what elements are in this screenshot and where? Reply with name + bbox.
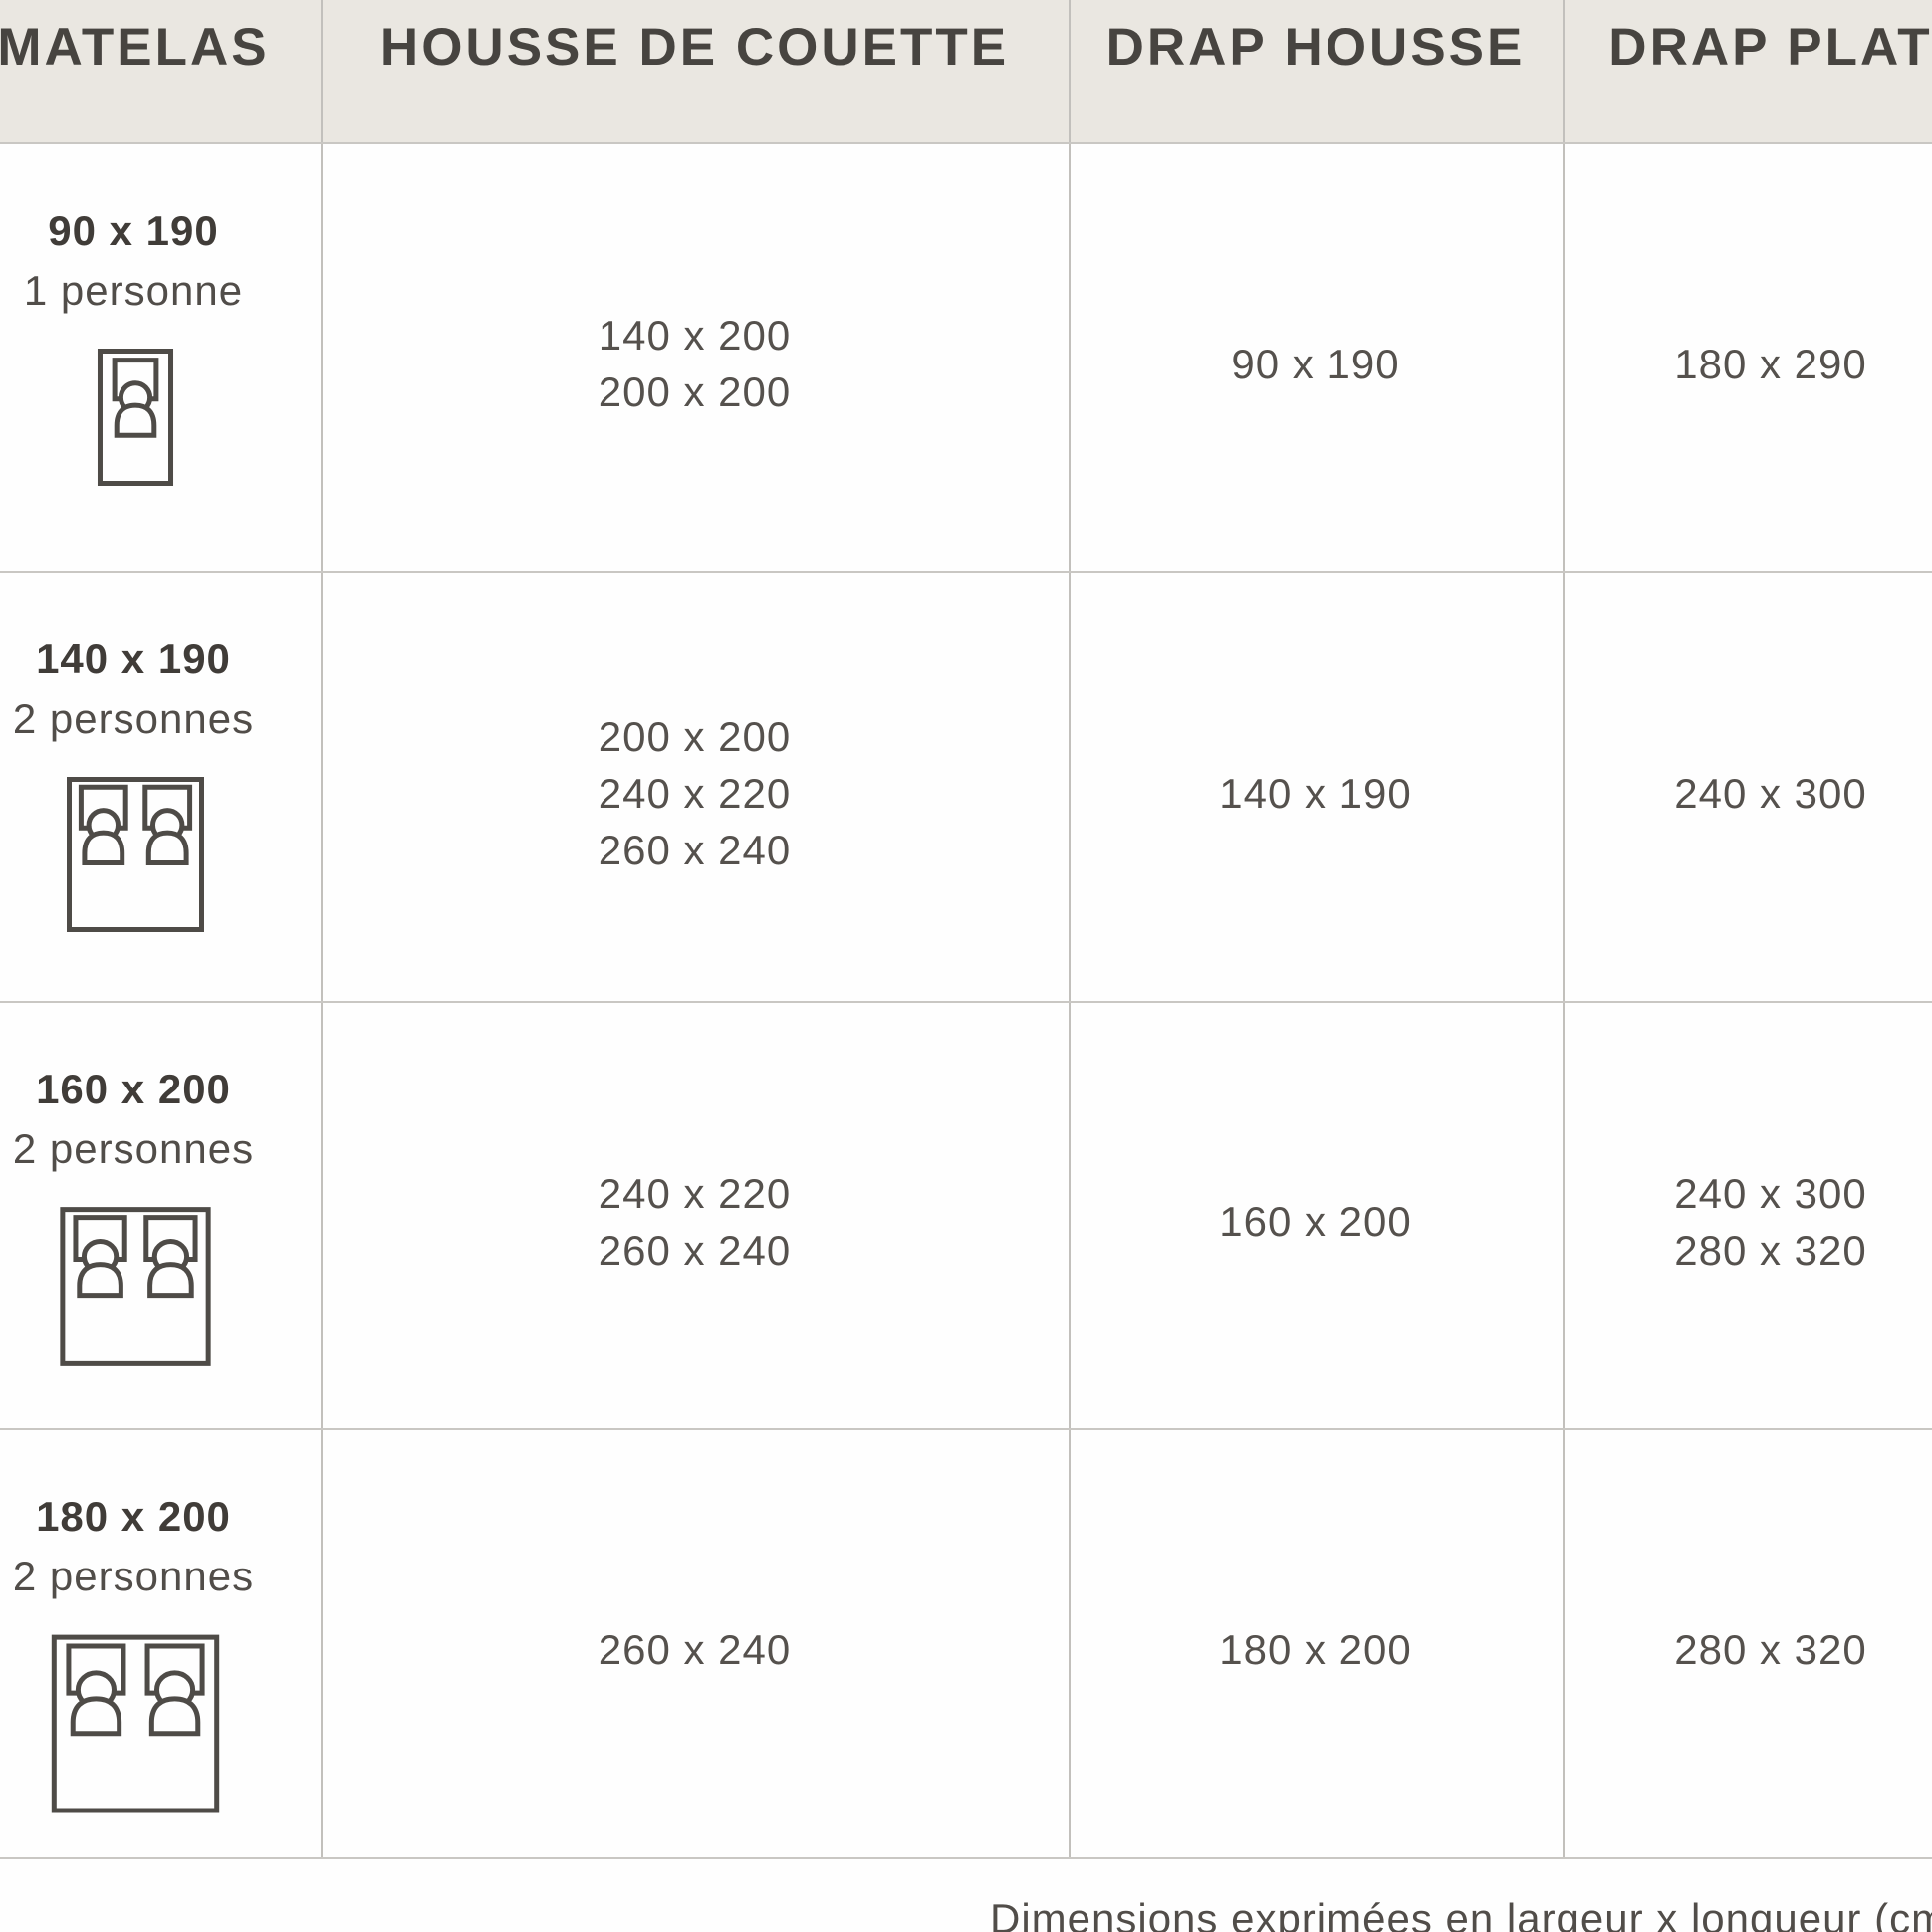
bed-icon-wrap	[66, 776, 205, 933]
cell-drap-plat: 240 x 300 280 x 320	[1565, 1008, 1932, 1435]
mattress-size-label: 90 x 190	[0, 208, 333, 254]
size-value: 280 x 320	[1674, 1222, 1867, 1279]
size-value: 200 x 200	[599, 708, 792, 765]
cell-drap-plat: 280 x 320	[1565, 1435, 1932, 1864]
size-value: 260 x 240	[599, 1621, 792, 1678]
mattress-size-label: 160 x 200	[0, 1067, 333, 1112]
column-header-drap-housse: DRAP HOUSSE	[1069, 20, 1563, 76]
cell-housse-de-couette: 200 x 200 240 x 220 260 x 240	[321, 578, 1069, 1008]
double-bed-icon	[50, 1633, 221, 1814]
row-divider	[0, 571, 1932, 573]
size-value: 240 x 220	[599, 765, 792, 822]
single-bed-icon	[97, 348, 174, 487]
cell-drap-housse: 160 x 200	[1069, 1008, 1563, 1435]
size-value: 240 x 300	[1674, 765, 1867, 822]
mattress-capacity-label: 2 personnes	[0, 1126, 333, 1172]
cell-housse-de-couette: 260 x 240	[321, 1435, 1069, 1864]
size-value: 260 x 240	[599, 822, 792, 878]
cell-drap-housse: 180 x 200	[1069, 1435, 1563, 1864]
mattress-size-label: 140 x 190	[0, 636, 333, 682]
bedding-size-guide: MATELAS HOUSSE DE COUETTE DRAP HOUSSE DR…	[0, 0, 1932, 1932]
row-divider	[0, 1857, 1932, 1859]
size-value: 140 x 200	[599, 307, 792, 363]
cell-drap-housse: 140 x 190	[1069, 578, 1563, 1008]
size-value: 240 x 300	[1674, 1165, 1867, 1222]
size-value: 140 x 190	[1219, 765, 1412, 822]
bed-icon-wrap	[97, 348, 174, 487]
table-row: 140 x 190 2 personnes 200 x 200 240 x 22…	[0, 571, 1932, 1001]
column-divider	[321, 0, 323, 1858]
size-value: 160 x 200	[1219, 1193, 1412, 1250]
size-value: 280 x 320	[1674, 1621, 1867, 1678]
bed-icon-wrap	[50, 1633, 221, 1814]
size-value: 200 x 200	[599, 363, 792, 420]
cell-housse-de-couette: 240 x 220 260 x 240	[321, 1008, 1069, 1435]
mattress-capacity-label: 2 personnes	[0, 696, 333, 742]
row-divider	[0, 142, 1932, 144]
column-header-matelas: MATELAS	[0, 20, 333, 76]
size-value: 240 x 220	[599, 1165, 792, 1222]
row-divider	[0, 1001, 1932, 1003]
column-header-drap-plat: DRAP PLAT	[1565, 20, 1932, 76]
mattress-capacity-label: 1 personne	[0, 268, 333, 314]
bed-icon-wrap	[59, 1206, 212, 1367]
mattress-size-label: 180 x 200	[0, 1494, 333, 1540]
double-bed-icon	[59, 1206, 212, 1367]
mattress-capacity-label: 2 personnes	[0, 1554, 333, 1599]
double-bed-icon	[66, 776, 205, 933]
table-row: 90 x 190 1 personne 140 x 200 200 x 200 …	[0, 142, 1932, 571]
cell-housse-de-couette: 140 x 200 200 x 200	[321, 149, 1069, 578]
size-value: 90 x 190	[1231, 336, 1399, 392]
dimensions-footnote: Dimensions exprimées en largeur x longue…	[990, 1894, 1932, 1932]
column-divider	[1563, 0, 1565, 1858]
column-divider	[1069, 0, 1071, 1858]
cell-drap-plat: 180 x 290	[1565, 149, 1932, 578]
cell-drap-plat: 240 x 300	[1565, 578, 1932, 1008]
size-value: 180 x 290	[1674, 336, 1867, 392]
column-header-housse-de-couette: HOUSSE DE COUETTE	[321, 20, 1069, 76]
table-row: 160 x 200 2 personnes 240 x 220 260 x 24…	[0, 1001, 1932, 1428]
size-value: 260 x 240	[599, 1222, 792, 1279]
cell-drap-housse: 90 x 190	[1069, 149, 1563, 578]
size-value: 180 x 200	[1219, 1621, 1412, 1678]
row-divider	[0, 1428, 1932, 1430]
table-row: 180 x 200 2 personnes 260 x 240 180 x 20…	[0, 1428, 1932, 1857]
